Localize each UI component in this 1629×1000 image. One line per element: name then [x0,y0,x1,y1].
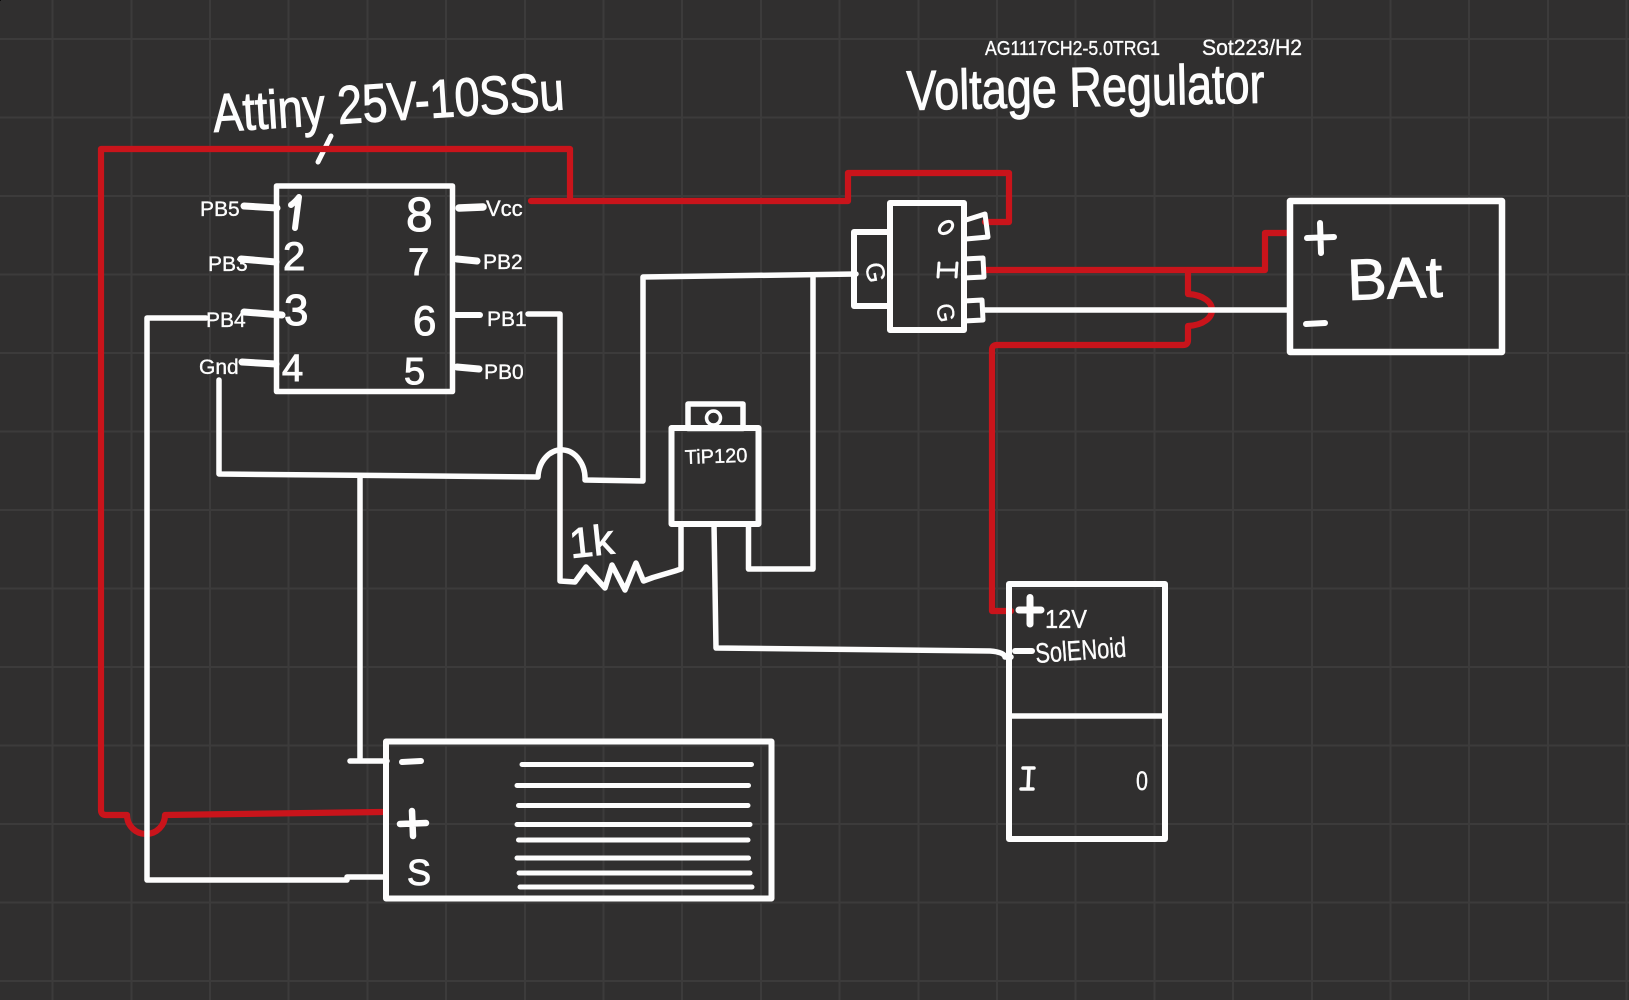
svg-text:PB5: PB5 [200,198,240,221]
svg-text:Vcc: Vcc [486,196,523,221]
svg-text:PB2: PB2 [483,251,523,274]
svg-text:Sot223/H2: Sot223/H2 [1202,35,1302,60]
svg-text:5: 5 [404,351,425,393]
svg-text:1k: 1k [567,515,617,566]
svg-text:SolENoid: SolENoid [1034,632,1127,669]
svg-text:Voltage Regulator: Voltage Regulator [906,52,1265,122]
svg-text:BAt: BAt [1346,245,1443,313]
svg-text:12V: 12V [1045,604,1088,634]
svg-text:S: S [407,852,431,893]
svg-text:PB4: PB4 [206,309,246,332]
svg-text:0: 0 [1136,766,1148,796]
svg-text:4: 4 [282,348,303,390]
svg-text:6: 6 [413,297,436,344]
svg-text:7: 7 [408,242,429,284]
svg-text:Attiny 25V-10SSu: Attiny 25V-10SSu [211,61,566,144]
svg-text:PB0: PB0 [484,361,524,384]
svg-text:AG1117CH2-5.0TRG1: AG1117CH2-5.0TRG1 [985,38,1160,60]
svg-text:TiP120: TiP120 [684,445,747,469]
svg-text:2: 2 [283,235,305,279]
svg-text:Gnd: Gnd [199,356,239,379]
svg-text:G: G [930,301,960,324]
svg-text:3: 3 [284,286,308,335]
svg-text:8: 8 [406,189,433,242]
svg-text:PB1: PB1 [487,308,527,331]
svg-text:PB3: PB3 [208,253,248,276]
